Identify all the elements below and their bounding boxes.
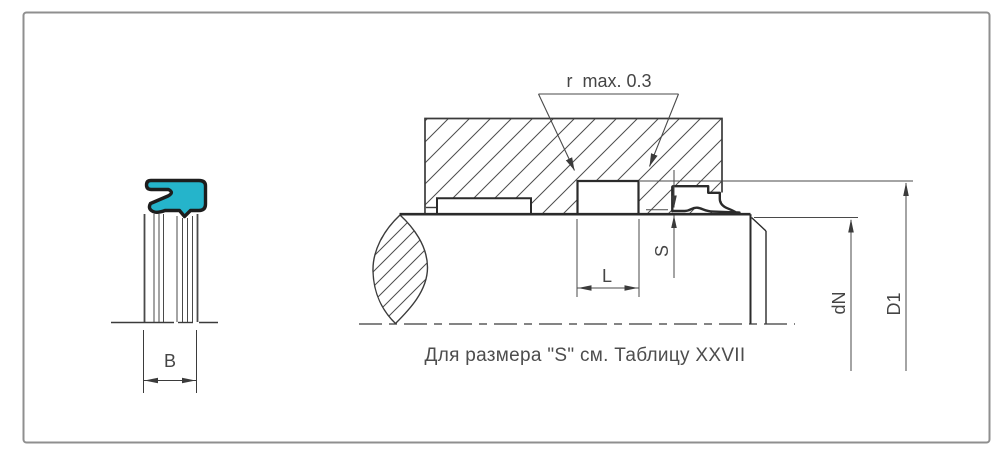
- housing-step: [426, 208, 437, 214]
- groove-diameter-label: D1: [885, 292, 903, 315]
- radius-note-label: r max. 0.3: [566, 72, 651, 90]
- shaft: [400, 214, 767, 324]
- size-table-caption: Для размера "S" см. Таблицу XXVII: [425, 345, 746, 367]
- clearance-label: S: [653, 245, 671, 257]
- installation-figure: [359, 94, 913, 371]
- drawing-canvas: [0, 0, 1000, 457]
- d1-dimension: [903, 183, 909, 372]
- guide-ring: [437, 198, 531, 213]
- groove: [578, 181, 639, 213]
- seal-body-lines: [145, 214, 198, 322]
- seal-width-label: B: [164, 352, 176, 370]
- drawing-frame: [24, 13, 990, 443]
- technical-drawing: r max. 0.3 L S dN D1 B Для размера "S" с…: [0, 0, 1000, 457]
- rod-diameter-label: dN: [830, 291, 848, 314]
- seal-cross-section: [147, 181, 206, 217]
- installed-seal: [672, 186, 739, 212]
- groove-length-label: L: [602, 267, 612, 285]
- shaft-break-section: [373, 215, 428, 324]
